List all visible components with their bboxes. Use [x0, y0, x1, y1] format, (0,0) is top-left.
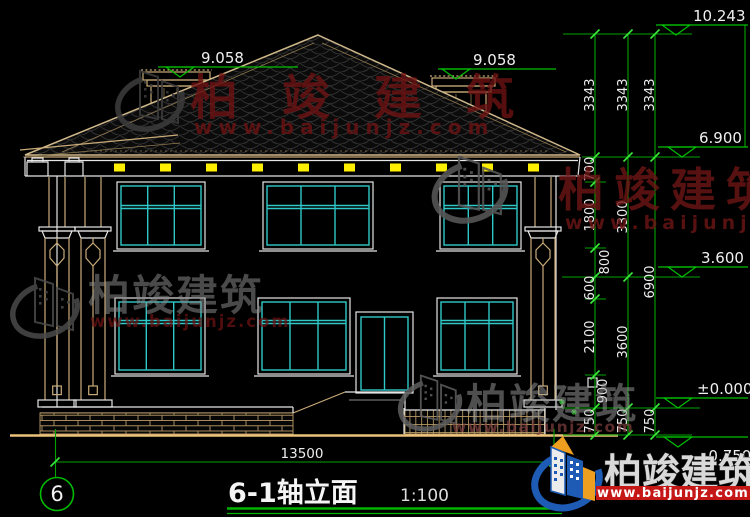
elevation-text: ±0.000 — [697, 380, 750, 398]
brand-logo-url: www.baijunjz.com — [597, 486, 749, 501]
dim-text: 3600 — [616, 325, 631, 358]
watermark-left: 柏竣建筑 www.baijunjz.com — [5, 271, 290, 345]
dim-text: 6900 — [643, 265, 658, 298]
window-1f-right — [433, 298, 521, 376]
dim-text: 800 — [598, 250, 613, 275]
axis-number: 6 — [50, 482, 63, 506]
elevation-marker-second-floor: 3.600 — [658, 249, 748, 277]
axis-bubble: 6 — [41, 478, 74, 511]
watermark-url-text: www.baijunjz.com — [194, 115, 494, 139]
elevation-text: 9.058 — [201, 49, 244, 67]
dim-text: 750 — [643, 409, 658, 434]
entry-ramp — [293, 392, 345, 413]
dim-text: 3343 — [616, 78, 631, 111]
drawing-title-block: 6-1轴立面 1:100 — [227, 477, 562, 514]
dim-text: 13500 — [281, 446, 324, 462]
window-2f-center — [259, 182, 377, 251]
elevation-marker-ground-floor: ±0.000 — [656, 380, 750, 408]
watermark-url-text: www.baijunjz.com — [452, 418, 634, 436]
entry-steps — [345, 392, 405, 410]
cad-elevation-screenshot: 3343 3343 3343 700 1800 800 600 2100 900… — [0, 0, 750, 517]
elevation-text: 3.600 — [701, 249, 744, 267]
window-1f-center — [254, 298, 354, 376]
dim-text: 3343 — [643, 78, 658, 111]
elevation-text: 6.900 — [699, 129, 742, 147]
elevation-drawing: 3343 3343 3343 700 1800 800 600 2100 900… — [0, 0, 750, 517]
elevation-marker-ridge: 10.243 — [656, 7, 748, 35]
plinth-brick — [40, 413, 293, 434]
entry-door — [356, 312, 413, 393]
page-title: 6-1轴立面 — [228, 477, 358, 509]
dim-text: 3343 — [583, 78, 598, 111]
watermark-url-text: www.baijunjz.com — [565, 212, 750, 234]
elevation-marker-eave: 6.900 — [658, 129, 748, 157]
dim-text: 600 — [583, 276, 598, 301]
watermark-url-text: www.baijunjz.com — [90, 312, 291, 331]
elevation-text: 9.058 — [473, 51, 516, 69]
elevation-text: 10.243 — [693, 7, 746, 25]
watermark-bottom: 柏竣建筑 www.baijunjz.com — [394, 373, 638, 437]
brand-logo-icon — [527, 436, 607, 517]
lantern-ornament — [536, 238, 550, 386]
watermark-brand-text: 柏竣建筑 — [558, 163, 750, 217]
scale-label: 1:100 — [400, 486, 449, 506]
dim-text: 2100 — [583, 320, 598, 353]
dim-roof-tiers: 3343 3343 3343 — [583, 78, 658, 111]
window-2f-left — [113, 182, 209, 251]
